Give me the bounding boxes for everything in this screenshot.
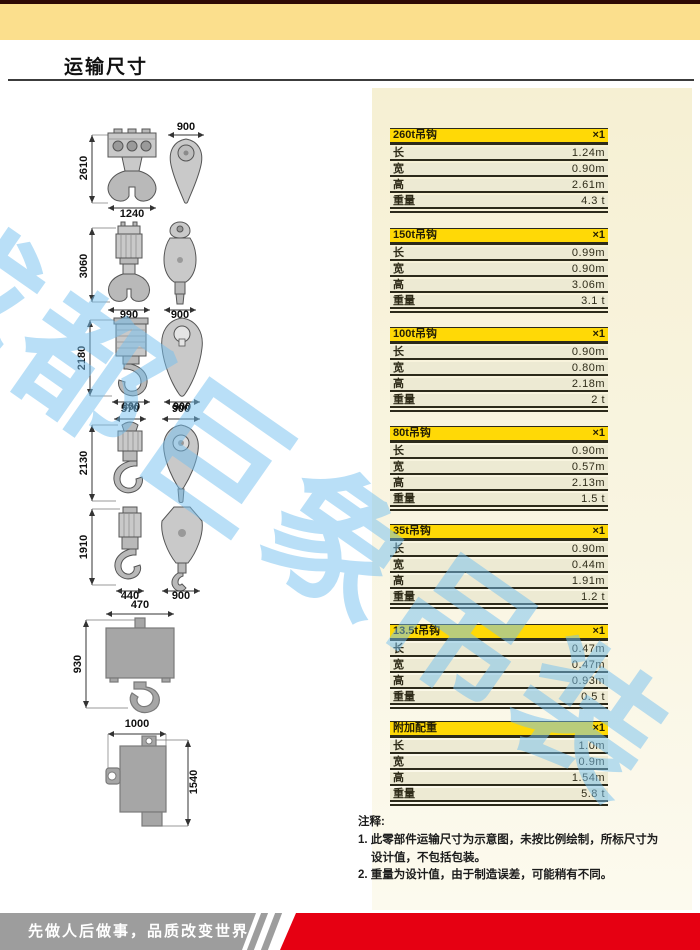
table-header: 150t吊钩 ×1 (390, 228, 608, 245)
dim-label-front-width: 1000 (108, 718, 166, 730)
table-row: 长1.24m (390, 147, 608, 161)
footer-slogan: 先做人后做事，品质改变世界 (28, 913, 249, 950)
table-title: 150t吊钩 (393, 229, 437, 242)
dim-label-height: 2180 (76, 340, 88, 376)
spec-table-150t: 150t吊钩 ×1 长0.99m 宽0.90m 高3.06m 重量3.1 t (390, 228, 608, 313)
table-row: 重量1.5 t (390, 493, 608, 507)
table-row: 长0.90m (390, 445, 608, 459)
table-qty: ×1 (592, 328, 605, 341)
drawing-counterweight: 1000 1540 (62, 716, 212, 838)
dim-label-side-width: 900 (168, 121, 204, 133)
notes-block: 注释: 1. 此零部件运输尺寸为示意图，未按比例绘制，所标尺寸为 设计值，不包括… (358, 814, 688, 885)
table-row: 高3.06m (390, 279, 608, 293)
hook-13-5t-art (62, 598, 212, 716)
table-qty: ×1 (592, 229, 605, 242)
footer-bar: 先做人后做事，品质改变世界 (0, 913, 700, 950)
spec-table-counterweight: 附加配重 ×1 长1.0m 宽0.9m 高1.54m 重量5.8 t (390, 721, 608, 806)
catalog-page: 运输尺寸 2610 1240 900 (0, 0, 700, 950)
table-row: 长1.0m (390, 740, 608, 754)
drawing-35t-hook: 1910 440 900 (62, 503, 212, 603)
table-row: 高0.93m (390, 675, 608, 689)
table-bottom-rule (390, 607, 608, 609)
table-row: 重量0.5 t (390, 691, 608, 705)
dim-label-height: 3060 (78, 248, 90, 284)
notes-title: 注释: (358, 814, 688, 832)
spec-table-13-5t: 13.5t吊钩 ×1 长0.47m 宽0.47m 高0.93m 重量0.5 t (390, 624, 608, 709)
drawing-150t-hook: 3060 990 900 (62, 218, 212, 320)
table-row: 宽0.90m (390, 163, 608, 177)
table-title: 附加配重 (393, 722, 437, 735)
dim-label-height: 2130 (78, 445, 90, 481)
table-title: 100t吊钩 (393, 328, 437, 341)
table-row: 高1.54m (390, 772, 608, 786)
spec-table-100t: 100t吊钩 ×1 长0.90m 宽0.80m 高2.18m 重量2 t (390, 327, 608, 412)
table-title: 35t吊钩 (393, 525, 431, 538)
table-row: 重量5.8 t (390, 788, 608, 802)
title-divider (8, 79, 694, 81)
drawing-260t-hook: 2610 1240 900 (62, 115, 212, 220)
drawing-13-5t-hook: 470 930 (62, 598, 212, 716)
drawing-100t-hook: 2180 800 900 (62, 312, 212, 412)
table-title: 13.5t吊钩 (393, 625, 440, 638)
dim-label-height: 2610 (78, 150, 90, 186)
table-bottom-rule (390, 707, 608, 709)
footer-red-band (280, 913, 700, 950)
table-row: 重量4.3 t (390, 195, 608, 209)
table-row: 高2.13m (390, 477, 608, 491)
table-bottom-rule (390, 509, 608, 511)
table-row: 宽0.57m (390, 461, 608, 475)
table-qty: ×1 (592, 129, 605, 142)
table-row: 长0.90m (390, 346, 608, 360)
table-row: 宽0.44m (390, 559, 608, 573)
table-qty: ×1 (592, 722, 605, 735)
table-row: 高1.91m (390, 575, 608, 589)
table-bottom-rule (390, 311, 608, 313)
table-title: 260t吊钩 (393, 129, 437, 142)
table-row: 宽0.9m (390, 756, 608, 770)
table-row: 长0.90m (390, 543, 608, 557)
table-row: 高2.61m (390, 179, 608, 193)
table-row: 宽0.47m (390, 659, 608, 673)
table-row: 长0.47m (390, 643, 608, 657)
table-bottom-rule (390, 804, 608, 806)
dim-label-height: 930 (72, 646, 84, 682)
page-title: 运输尺寸 (64, 52, 148, 79)
table-header: 100t吊钩 ×1 (390, 327, 608, 344)
dim-label-front-width: 470 (106, 599, 174, 611)
drawing-80t-hook: 570 900 2130 (62, 403, 212, 508)
note-line: 1. 此零部件运输尺寸为示意图，未按比例绘制，所标尺寸为 (358, 832, 688, 850)
table-bottom-rule (390, 211, 608, 213)
table-bottom-rule (390, 410, 608, 412)
table-qty: ×1 (592, 427, 605, 440)
table-header: 35t吊钩 ×1 (390, 524, 608, 541)
table-title: 80t吊钩 (393, 427, 431, 440)
table-qty: ×1 (592, 625, 605, 638)
table-header: 附加配重 ×1 (390, 721, 608, 738)
note-line: 设计值，不包括包装。 (358, 850, 688, 868)
spec-table-35t: 35t吊钩 ×1 长0.90m 宽0.44m 高1.91m 重量1.2 t (390, 524, 608, 609)
dim-label-height: 1540 (188, 762, 200, 802)
dim-label-front-width: 570 (114, 403, 146, 415)
table-qty: ×1 (592, 525, 605, 538)
table-row: 宽0.90m (390, 263, 608, 277)
table-header: 80t吊钩 ×1 (390, 426, 608, 443)
table-row: 重量1.2 t (390, 591, 608, 605)
table-row: 重量2 t (390, 394, 608, 408)
table-row: 高2.18m (390, 378, 608, 392)
top-yellow-band (0, 4, 700, 40)
table-row: 宽0.80m (390, 362, 608, 376)
table-header: 260t吊钩 ×1 (390, 128, 608, 145)
dim-label-height: 1910 (78, 529, 90, 565)
table-row: 重量3.1 t (390, 295, 608, 309)
table-header: 13.5t吊钩 ×1 (390, 624, 608, 641)
spec-table-80t: 80t吊钩 ×1 长0.90m 宽0.57m 高2.13m 重量1.5 t (390, 426, 608, 511)
spec-table-260t: 260t吊钩 ×1 长1.24m 宽0.90m 高2.61m 重量4.3 t (390, 128, 608, 213)
table-row: 长0.99m (390, 247, 608, 261)
note-line: 2. 重量为设计值，由于制造误差，可能稍有不同。 (358, 867, 688, 885)
dim-label-side-width: 900 (162, 403, 200, 415)
